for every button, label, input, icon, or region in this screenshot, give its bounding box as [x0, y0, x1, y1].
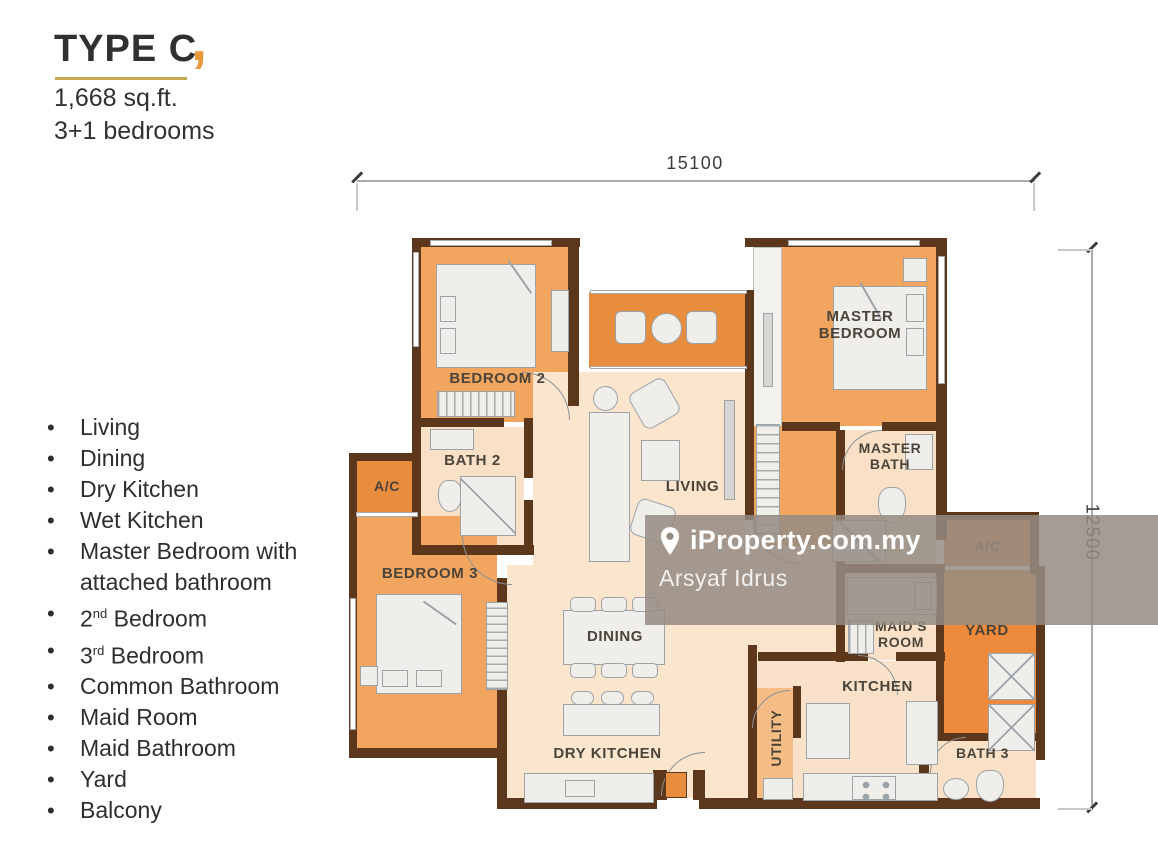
bedroom2-side-panel — [551, 290, 569, 352]
bedroom2-pillow — [440, 328, 456, 354]
master-nightstand — [903, 258, 927, 282]
wall — [699, 798, 755, 809]
label-bath2: BATH 2 — [420, 452, 525, 469]
wall — [349, 748, 507, 758]
bedroom3-pillow — [416, 670, 442, 687]
ac-ledge — [356, 512, 418, 517]
watermark: iProperty.com.my Arsyaf Idrus — [645, 515, 1158, 625]
dimension-extension — [1058, 249, 1092, 251]
label-master-bath: MASTER BATH — [850, 440, 930, 472]
label-dining: DINING — [575, 628, 655, 645]
wall — [524, 500, 533, 555]
bedroom3-side-table — [360, 666, 378, 686]
wall — [745, 290, 754, 520]
wall — [524, 418, 533, 478]
entry-door-leaf — [665, 772, 687, 798]
window — [938, 256, 945, 384]
kitchen-stove — [852, 776, 896, 800]
dimension-width-value: 15100 — [595, 153, 795, 174]
feature-item: Living — [45, 412, 337, 443]
label-utility: UTILITY — [768, 693, 784, 783]
label-living: LIVING — [645, 478, 740, 495]
kitchen-fridge — [906, 701, 938, 765]
wall — [782, 422, 840, 431]
unit-bedrooms: 3+1 bedrooms — [54, 119, 215, 144]
bath3-sink — [943, 778, 969, 800]
window — [430, 240, 552, 246]
living-sofa — [589, 412, 630, 562]
dimension-line-top — [357, 180, 1035, 182]
bath2-shower — [460, 476, 516, 536]
label-bath3: BATH 3 — [935, 745, 1030, 761]
living-plant — [593, 386, 618, 411]
dimension-extension — [1058, 808, 1092, 810]
label-master-bedroom: MASTER BEDROOM — [800, 308, 920, 343]
feature-item: Balcony — [45, 795, 337, 826]
wardrobe-mirror — [763, 313, 773, 387]
window — [413, 252, 419, 347]
label-kitchen: KITCHEN — [830, 678, 925, 695]
feature-item: Wet Kitchen — [45, 505, 337, 536]
wall — [412, 418, 504, 427]
drykitchen-stool — [601, 691, 624, 705]
bath3-toilet — [976, 770, 1004, 802]
dining-chair — [601, 663, 627, 678]
wall — [349, 453, 419, 461]
wall — [793, 686, 801, 738]
bath2-toilet — [438, 480, 462, 512]
title-underline — [55, 77, 187, 80]
drykitchen-sink — [565, 780, 595, 797]
feature-list: Living Dining Dry Kitchen Wet Kitchen Ma… — [45, 412, 337, 826]
window — [350, 598, 356, 730]
label-bedroom3: BEDROOM 3 — [360, 565, 500, 582]
bedroom2-wardrobe — [437, 391, 515, 417]
brand-comma-icon: , — [191, 12, 207, 70]
balcony-glass-door — [590, 366, 747, 369]
watermark-brand: iProperty.com.my — [659, 525, 1158, 556]
dimension-tick — [1029, 171, 1041, 183]
dining-chair — [570, 663, 596, 678]
watermark-brand-text: iProperty.com.my — [690, 525, 921, 556]
feature-item: Master Bedroom with attached bathroom — [45, 536, 337, 598]
feature-item: Yard — [45, 764, 337, 795]
bedroom3-wardrobe — [486, 602, 508, 690]
drykitchen-stool — [631, 691, 654, 705]
bedroom2-pillow — [440, 296, 456, 322]
location-pin-icon — [659, 526, 681, 556]
feature-item: Dry Kitchen — [45, 474, 337, 505]
dimension-extension — [356, 183, 358, 211]
wall — [568, 238, 579, 372]
wall — [882, 422, 944, 431]
dining-chair — [632, 663, 658, 678]
bedroom3-pillow — [382, 670, 408, 687]
dining-chair — [601, 597, 627, 612]
window — [788, 240, 920, 246]
watermark-agent: Arsyaf Idrus — [659, 565, 1158, 592]
yard-dryer — [988, 704, 1035, 751]
feature-item: 3rd Bedroom — [45, 635, 337, 672]
dining-chair — [570, 597, 596, 612]
balcony-railing — [590, 290, 747, 294]
dimension-extension — [1033, 183, 1035, 211]
balcony-table — [651, 313, 682, 344]
feature-item: Maid Room — [45, 702, 337, 733]
balcony-chair — [615, 311, 646, 344]
floorplan-page: TYPE C , 1,668 sq.ft. 3+1 bedrooms Livin… — [0, 0, 1158, 860]
kitchen-cabinet — [806, 703, 850, 759]
feature-item: Common Bathroom — [45, 671, 337, 702]
bath2-sink — [430, 429, 474, 450]
page-title: TYPE C — [54, 30, 197, 68]
feature-item: Dining — [45, 443, 337, 474]
yard-washer — [988, 653, 1035, 700]
feature-item: Maid Bathroom — [45, 733, 337, 764]
label-dry-kitchen: DRY KITCHEN — [535, 745, 680, 762]
drykitchen-island — [563, 704, 660, 736]
label-ac-left: A/C — [356, 478, 418, 494]
drykitchen-stool — [571, 691, 594, 705]
label-bedroom2: BEDROOM 2 — [425, 370, 570, 387]
balcony-chair — [686, 311, 717, 344]
wall — [896, 652, 945, 661]
feature-item: 2nd Bedroom — [45, 598, 337, 635]
unit-area: 1,668 sq.ft. — [54, 86, 178, 111]
living-coffee-table — [641, 440, 680, 481]
